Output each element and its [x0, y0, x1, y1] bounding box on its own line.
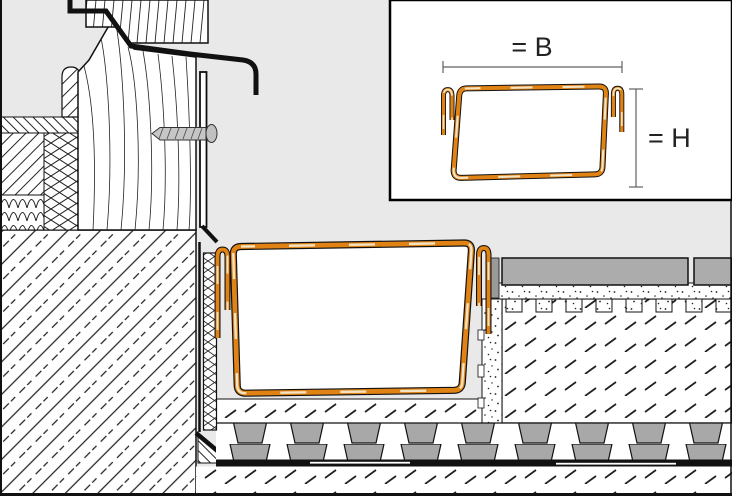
mortar-column: [482, 299, 502, 423]
screed-layer: [502, 299, 732, 423]
technical-drawing-canvas: = B = H: [0, 0, 732, 496]
membrane-overlap: [310, 462, 410, 464]
membrane-overlap: [556, 463, 676, 465]
inset-gutter-profile: [444, 86, 622, 177]
mortar-notch: [478, 330, 484, 340]
dimension-label-b: = B: [511, 32, 552, 62]
gutter-outline: [233, 243, 471, 393]
floor-tile: [694, 258, 732, 285]
drainage-layer-trapezoids: [216, 423, 732, 460]
dimension-label-h: = H: [648, 123, 691, 153]
inset-panel: = B = H: [390, 0, 732, 200]
interior-screed-block: [0, 133, 44, 195]
sloped-substrate: [196, 467, 732, 494]
mortar-notch: [478, 398, 484, 408]
drainage-gutter-profile: [218, 243, 489, 393]
membrane-termination-bar: [200, 72, 207, 227]
fixing-screw: [152, 125, 217, 143]
screw-head: [206, 125, 217, 143]
section-detail-svg: = B = H: [0, 0, 732, 496]
floor-tile: [502, 258, 688, 285]
sub-sill-layers: [0, 117, 78, 230]
sill-support-band: [0, 117, 78, 133]
masonry-wall: [0, 230, 196, 496]
screed-under-gutter: [216, 399, 482, 423]
mineral-wool-layer: [0, 195, 44, 230]
perimeter-insulation-block: [44, 133, 78, 230]
tile-edge-trim: [491, 258, 499, 298]
mortar-notch: [478, 365, 484, 377]
